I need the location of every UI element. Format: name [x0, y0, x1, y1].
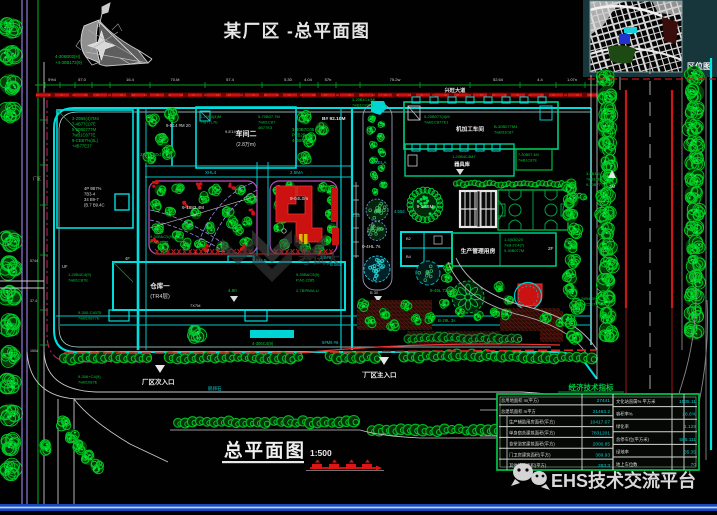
svg-text:70: 70 — [691, 462, 697, 468]
svg-text:9-E14 #M 20: 9-E14 #M 20 — [166, 123, 191, 128]
svg-text:389.93: 389.93 — [595, 452, 610, 458]
svg-text:厂区主入口: 厂区主入口 — [364, 370, 397, 379]
svg-text:3-20B4C4(M): 3-20B4C4(M) — [352, 97, 376, 102]
svg-text:16.4: 16.4 — [126, 77, 135, 82]
svg-text:B-29L 3s: B-29L 3s — [438, 318, 456, 323]
svg-text:7-30B07 4M: 7-30B07 4M — [518, 153, 539, 157]
svg-text:地上车位数: 地上车位数 — [616, 461, 638, 468]
svg-text:某厂区 -总平面图: 某厂区 -总平面图 — [224, 21, 371, 41]
svg-text:9-30B077M: 9-30B077M — [504, 248, 524, 253]
svg-text:9-30B77: 9-30B77 — [586, 182, 601, 187]
svg-text:(2.8万m): (2.8万m) — [236, 142, 256, 148]
svg-text:鹅卵石: 鹅卵石 — [208, 385, 222, 392]
svg-text:4-306C4(9): 4-306C4(9) — [252, 341, 274, 346]
svg-text:B4: B4 — [406, 254, 412, 259]
svg-text:总平面图: 总平面图 — [224, 440, 306, 461]
svg-text:9-49L 72d: 9-49L 72d — [430, 288, 450, 293]
svg-text:9-306+C4(9): 9-306+C4(9) — [78, 374, 101, 379]
svg-text:1-20B4C4(9): 1-20B4C4(9) — [68, 272, 92, 277]
svg-text:7B3-4: 7B3-4 — [84, 192, 96, 197]
svg-text:4-306B02(H): 4-306B02(H) — [55, 54, 81, 59]
svg-text:9-30B&C5(9): 9-30B&C5(9) — [150, 234, 174, 239]
svg-text:机加工车间: 机加工车间 — [456, 125, 484, 133]
svg-text:28.6%: 28.6% — [682, 412, 696, 418]
svg-text:XELA: XELA — [375, 160, 387, 165]
svg-text:经济技术指标: 经济技术指标 — [569, 382, 614, 392]
svg-text:4.4: 4.4 — [537, 77, 543, 82]
svg-text:1:500: 1:500 — [310, 448, 332, 458]
svg-text:4P 9B7%: 4P 9B7% — [84, 186, 102, 191]
svg-text:4.50d: 4.50d — [394, 209, 405, 214]
svg-text:P.A2-2285: P.A2-2285 — [296, 278, 315, 283]
svg-text:9-30B&C5(9): 9-30B&C5(9) — [296, 272, 320, 277]
svg-text:仓库一: 仓库一 — [149, 281, 170, 290]
svg-text:585.111: 585.111 — [679, 437, 696, 443]
svg-text:7wB1087E: 7wB1087E — [78, 380, 98, 385]
svg-text:75.2w: 75.2w — [390, 77, 401, 82]
svg-text:5-20B0777M: 5-20B0777M — [72, 127, 96, 132]
svg-text:P.A2-2285: P.A2-2285 — [150, 240, 169, 245]
svg-text:B# 92.10M: B# 92.10M — [322, 116, 345, 122]
svg-text:3-0B4M: 3-0B4M — [586, 171, 600, 176]
svg-text:+4B77E37: +4B77E37 — [72, 144, 92, 149]
svg-text:9-1883.4M: 9-1883.4M — [182, 205, 204, 210]
svg-text:生产管理用房: 生产管理用房 — [461, 247, 496, 255]
svg-text:7wB10877E: 7wB10877E — [78, 316, 100, 321]
svg-text:3-30B7C05: 3-30B7C05 — [292, 127, 315, 132]
svg-text:7wB17E: 7wB17E — [586, 177, 601, 182]
svg-text:考试大: 考试大 — [298, 251, 340, 267]
svg-text:食堂浴室建筑面积(平方): 食堂浴室建筑面积(平方) — [509, 440, 555, 447]
svg-text:总用地面积 m(平方): 总用地面积 m(平方) — [501, 397, 539, 404]
svg-text:57h: 57h — [325, 77, 332, 82]
svg-text:门卫房建筑面积(平方): 门卫房建筑面积(平方) — [509, 451, 551, 458]
svg-text:EHS技术交流平台: EHS技术交流平台 — [551, 470, 696, 491]
svg-text:7wB1C877E1: 7wB1C877E1 — [424, 120, 449, 125]
svg-text:5-20B077(4)M: 5-20B077(4)M — [424, 114, 450, 119]
svg-text:绿化率: 绿化率 — [616, 423, 630, 430]
svg-text:生产辅助用房面积(平方): 生产辅助用房面积(平方) — [509, 419, 555, 426]
svg-text:5.30: 5.30 — [284, 77, 293, 82]
svg-text:2.5MA: 2.5MA — [290, 170, 303, 175]
svg-text:10417.07: 10417.07 — [590, 420, 610, 426]
svg-text:5-70B07.7M: 5-70B07.7M — [258, 114, 280, 119]
svg-text:UF: UF — [62, 264, 68, 269]
svg-text:4F: 4F — [125, 256, 130, 261]
svg-text:容积率%: 容积率% — [616, 411, 633, 418]
svg-text:(B.7 B9.4C: (B.7 B9.4C — [84, 203, 104, 208]
svg-text:57.0: 57.0 — [78, 77, 87, 82]
svg-text:9-CEB7%(0L): 9-CEB7%(0L) — [72, 138, 98, 143]
svg-text:37.4: 37.4 — [30, 299, 37, 303]
svg-text:70.M: 70.M — [171, 77, 180, 82]
svg-text:5#M6 #6: 5#M6 #6 — [322, 340, 339, 345]
svg-text:2F: 2F — [548, 246, 554, 251]
svg-text:263.3: 263.3 — [598, 463, 610, 469]
svg-text:XHL4: XHL4 — [205, 170, 217, 175]
svg-text:总建筑面积 m平方: 总建筑面积 m平方 — [501, 408, 537, 415]
svg-text:器具库: 器具库 — [453, 160, 470, 168]
svg-text:5744: 5744 — [30, 259, 38, 263]
svg-text:B 30: B 30 — [370, 290, 379, 295]
svg-text:(TR4层): (TR4层) — [150, 293, 170, 300]
svg-text:P+B2B-20: P+B2B-20 — [292, 133, 313, 138]
svg-text:7-4B77(1)7E: 7-4B77(1)7E — [72, 122, 96, 127]
svg-text:21463.2: 21463.2 — [593, 409, 611, 415]
svg-text:B2: B2 — [406, 236, 412, 241]
svg-text:7wB1C87E: 7wB1C87E — [518, 159, 537, 163]
svg-text:0-4HL 7s: 0-4HL 7s — [362, 244, 381, 249]
svg-text:9-08+C5E7: 9-08+C5E7 — [575, 302, 596, 307]
svg-text:厂区: 厂区 — [33, 176, 41, 181]
svg-text:4B77E3: 4B77E3 — [258, 125, 273, 130]
svg-text:4.04: 4.04 — [304, 77, 313, 82]
svg-text:1535.11: 1535.11 — [679, 399, 696, 405]
svg-text:B-30B077M4: B-30B077M4 — [494, 124, 518, 129]
svg-text:57.4: 57.4 — [226, 77, 235, 82]
svg-text:+3-29B4(3%): +3-29B4(3%) — [575, 296, 599, 301]
svg-text:1-20B4(4)M: 1-20B4(4)M — [200, 114, 221, 119]
svg-text:总停车位(平方米): 总停车位(平方米) — [616, 436, 650, 443]
svg-text:34 B9-7: 34 B9-7 — [84, 197, 99, 202]
svg-text:7w8-2C4(7): 7w8-2C4(7) — [504, 243, 525, 248]
svg-text:2-7BPB0A.U: 2-7BPB0A.U — [296, 288, 319, 293]
svg-text:1.128: 1.128 — [684, 424, 696, 430]
svg-text:2XWL 40d: 2XWL 40d — [140, 152, 161, 157]
svg-text:9-300-C4075: 9-300-C4075 — [78, 310, 102, 315]
svg-text:9-E14 #M: 9-E14 #M — [225, 129, 242, 134]
svg-text:4-0B03.3E: 4-0B03.3E — [292, 138, 313, 143]
svg-text:7wB1C877E: 7wB1C877E — [72, 133, 95, 138]
svg-text:7wB1C87: 7wB1C87 — [258, 120, 276, 125]
svg-text:7831201: 7831201 — [591, 431, 610, 437]
svg-text:7X7M: 7X7M — [190, 303, 200, 308]
svg-text:52.64: 52.64 — [493, 77, 504, 82]
svg-text:35.35: 35.35 — [684, 449, 696, 455]
svg-text:7M: 7M — [609, 184, 616, 189]
svg-text:文化站直属% 平方米: 文化站直属% 平方米 — [616, 398, 656, 405]
svg-text:1.07n: 1.07n — [567, 77, 577, 82]
svg-text:7wB1C87E: 7wB1C87E — [68, 278, 88, 283]
svg-text:9-04L0m: 9-04L0m — [290, 196, 308, 201]
svg-text:5%4: 5%4 — [48, 77, 57, 82]
svg-text:9-14.5M: 9-14.5M — [417, 204, 434, 209]
svg-text:单身宿舍建筑面积(平方): 单身宿舍建筑面积(平方) — [509, 430, 555, 437]
svg-text:+4-30B173(9): +4-30B173(9) — [55, 60, 83, 65]
svg-text:7wB1C87E1: 7wB1C87E1 — [352, 103, 374, 108]
svg-text:7-B77L7E: 7-B77L7E — [200, 120, 218, 125]
svg-text:7wB31C87: 7wB31C87 — [494, 130, 514, 135]
svg-text:150d: 150d — [30, 349, 38, 353]
svg-text:2000.85: 2000.85 — [593, 441, 611, 447]
svg-text:27441: 27441 — [597, 398, 611, 404]
svg-text:厂区次入口: 厂区次入口 — [142, 377, 175, 386]
svg-text:4.90: 4.90 — [228, 288, 237, 293]
svg-text:1-20B4C4M7: 1-20B4C4M7 — [452, 154, 476, 159]
svg-text:1-4(530)20: 1-4(530)20 — [504, 237, 524, 242]
svg-text:绿地率: 绿地率 — [616, 448, 630, 455]
svg-text:3-20B6(4)7M4: 3-20B6(4)7M4 — [72, 116, 99, 121]
